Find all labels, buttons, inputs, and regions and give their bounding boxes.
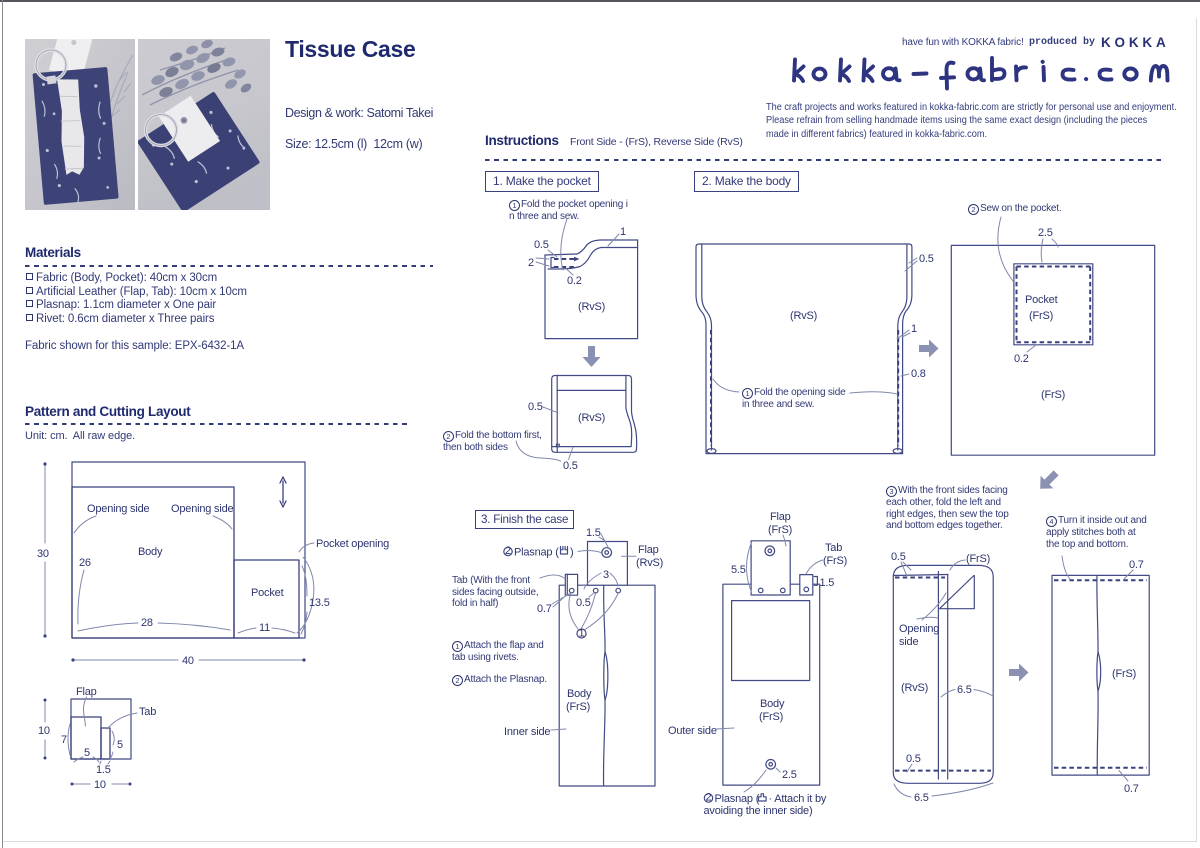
svg-text:0.5: 0.5 [906, 753, 921, 765]
svg-text:Opening side: Opening side [87, 503, 150, 515]
svg-text:Tab: Tab [825, 542, 842, 554]
svg-text:13.5: 13.5 [309, 597, 330, 609]
svg-text:6.5: 6.5 [914, 792, 929, 804]
svg-text:2.5: 2.5 [1038, 227, 1053, 239]
svg-text:Outer side: Outer side [668, 725, 717, 737]
svg-text:0.7: 0.7 [1124, 783, 1139, 795]
svg-text:2.5: 2.5 [782, 769, 797, 781]
svg-text:0.5: 0.5 [563, 460, 578, 472]
svg-text:Flap: Flap [770, 511, 791, 523]
svg-text:10: 10 [38, 725, 50, 737]
svg-text:30: 30 [37, 548, 49, 560]
svg-text:6.5: 6.5 [957, 684, 972, 696]
svg-text:(FrS): (FrS) [759, 711, 783, 723]
svg-text:Pocket: Pocket [251, 587, 284, 599]
svg-text:5.5: 5.5 [731, 564, 746, 576]
svg-text:1.5: 1.5 [820, 577, 835, 589]
svg-text:0.7: 0.7 [1129, 559, 1144, 571]
svg-text:0.5: 0.5 [919, 253, 934, 265]
svg-text:0.5: 0.5 [576, 597, 591, 609]
svg-text:(RvS): (RvS) [578, 412, 605, 424]
svg-text:(RvS): (RvS) [901, 682, 928, 694]
svg-text:Body: Body [760, 698, 785, 710]
svg-text:10: 10 [94, 779, 106, 791]
svg-text:40: 40 [182, 655, 194, 667]
svg-text:(RvS): (RvS) [790, 310, 817, 322]
svg-text:(FrS): (FrS) [768, 524, 792, 536]
svg-text:Body: Body [138, 546, 163, 558]
svg-text:(FrS): (FrS) [966, 553, 990, 565]
svg-text:Opening side: Opening side [171, 503, 234, 515]
svg-text:Opening: Opening [899, 623, 939, 635]
svg-text:(FrS): (FrS) [823, 555, 847, 567]
svg-text:0.2: 0.2 [567, 275, 582, 287]
svg-text:1: 1 [620, 226, 626, 238]
svg-text:Plasnap (: Plasnap ( [514, 547, 559, 559]
svg-text:0.5: 0.5 [891, 551, 906, 563]
svg-text:(RvS): (RvS) [578, 301, 605, 313]
svg-text:26: 26 [79, 557, 91, 569]
svg-text:0.5: 0.5 [528, 401, 543, 413]
svg-text:7: 7 [61, 734, 67, 746]
svg-text:Plasnap (: Plasnap ( [715, 793, 760, 805]
svg-text:28: 28 [141, 617, 153, 629]
svg-text:Flap: Flap [638, 544, 659, 556]
svg-text:(FrS): (FrS) [1041, 389, 1065, 401]
svg-text:· Attach it by: · Attach it by [769, 793, 827, 805]
svg-text:(FrS): (FrS) [1029, 310, 1053, 322]
svg-text:Tab: Tab [139, 706, 156, 718]
svg-text:Pocket: Pocket [1025, 294, 1058, 306]
svg-text:2: 2 [706, 792, 712, 804]
svg-text:avoiding the inner side): avoiding the inner side) [704, 805, 813, 817]
svg-text:Flap: Flap [76, 686, 97, 698]
svg-text:0.7: 0.7 [537, 603, 552, 615]
svg-text:1.5: 1.5 [96, 764, 111, 776]
svg-text:0.2: 0.2 [1014, 353, 1029, 365]
svg-text:): ) [570, 547, 573, 559]
svg-text:0.5: 0.5 [534, 239, 549, 251]
svg-text:2: 2 [528, 257, 534, 269]
svg-text:(FrS): (FrS) [1112, 668, 1136, 680]
svg-text:5: 5 [84, 747, 90, 759]
svg-text:11: 11 [259, 622, 270, 634]
svg-text:Pocket opening: Pocket opening [316, 538, 389, 550]
svg-text:(FrS): (FrS) [566, 701, 590, 713]
svg-text:Inner side: Inner side [504, 726, 550, 738]
svg-text:2: 2 [505, 545, 511, 557]
svg-text:Body: Body [567, 688, 592, 700]
svg-text:0.8: 0.8 [911, 368, 926, 380]
svg-text:1: 1 [911, 323, 917, 335]
svg-text:5: 5 [117, 739, 123, 751]
svg-text:side: side [899, 636, 918, 648]
svg-text:3: 3 [603, 569, 609, 581]
svg-text:(RvS): (RvS) [636, 557, 663, 569]
svg-text:1: 1 [579, 627, 585, 639]
